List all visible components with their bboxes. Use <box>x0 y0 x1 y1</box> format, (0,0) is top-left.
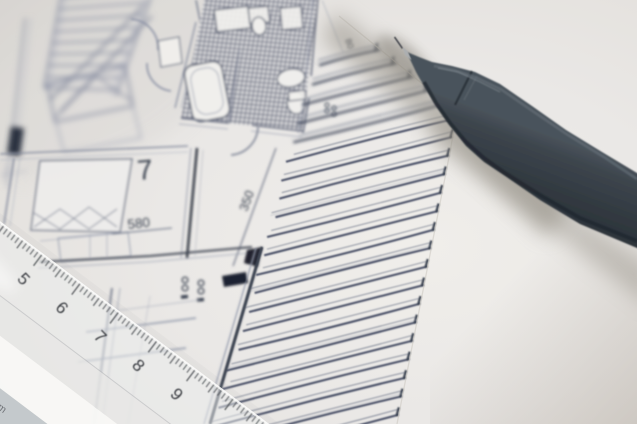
svg-text:7: 7 <box>136 154 154 186</box>
svg-text:580: 580 <box>127 215 151 232</box>
